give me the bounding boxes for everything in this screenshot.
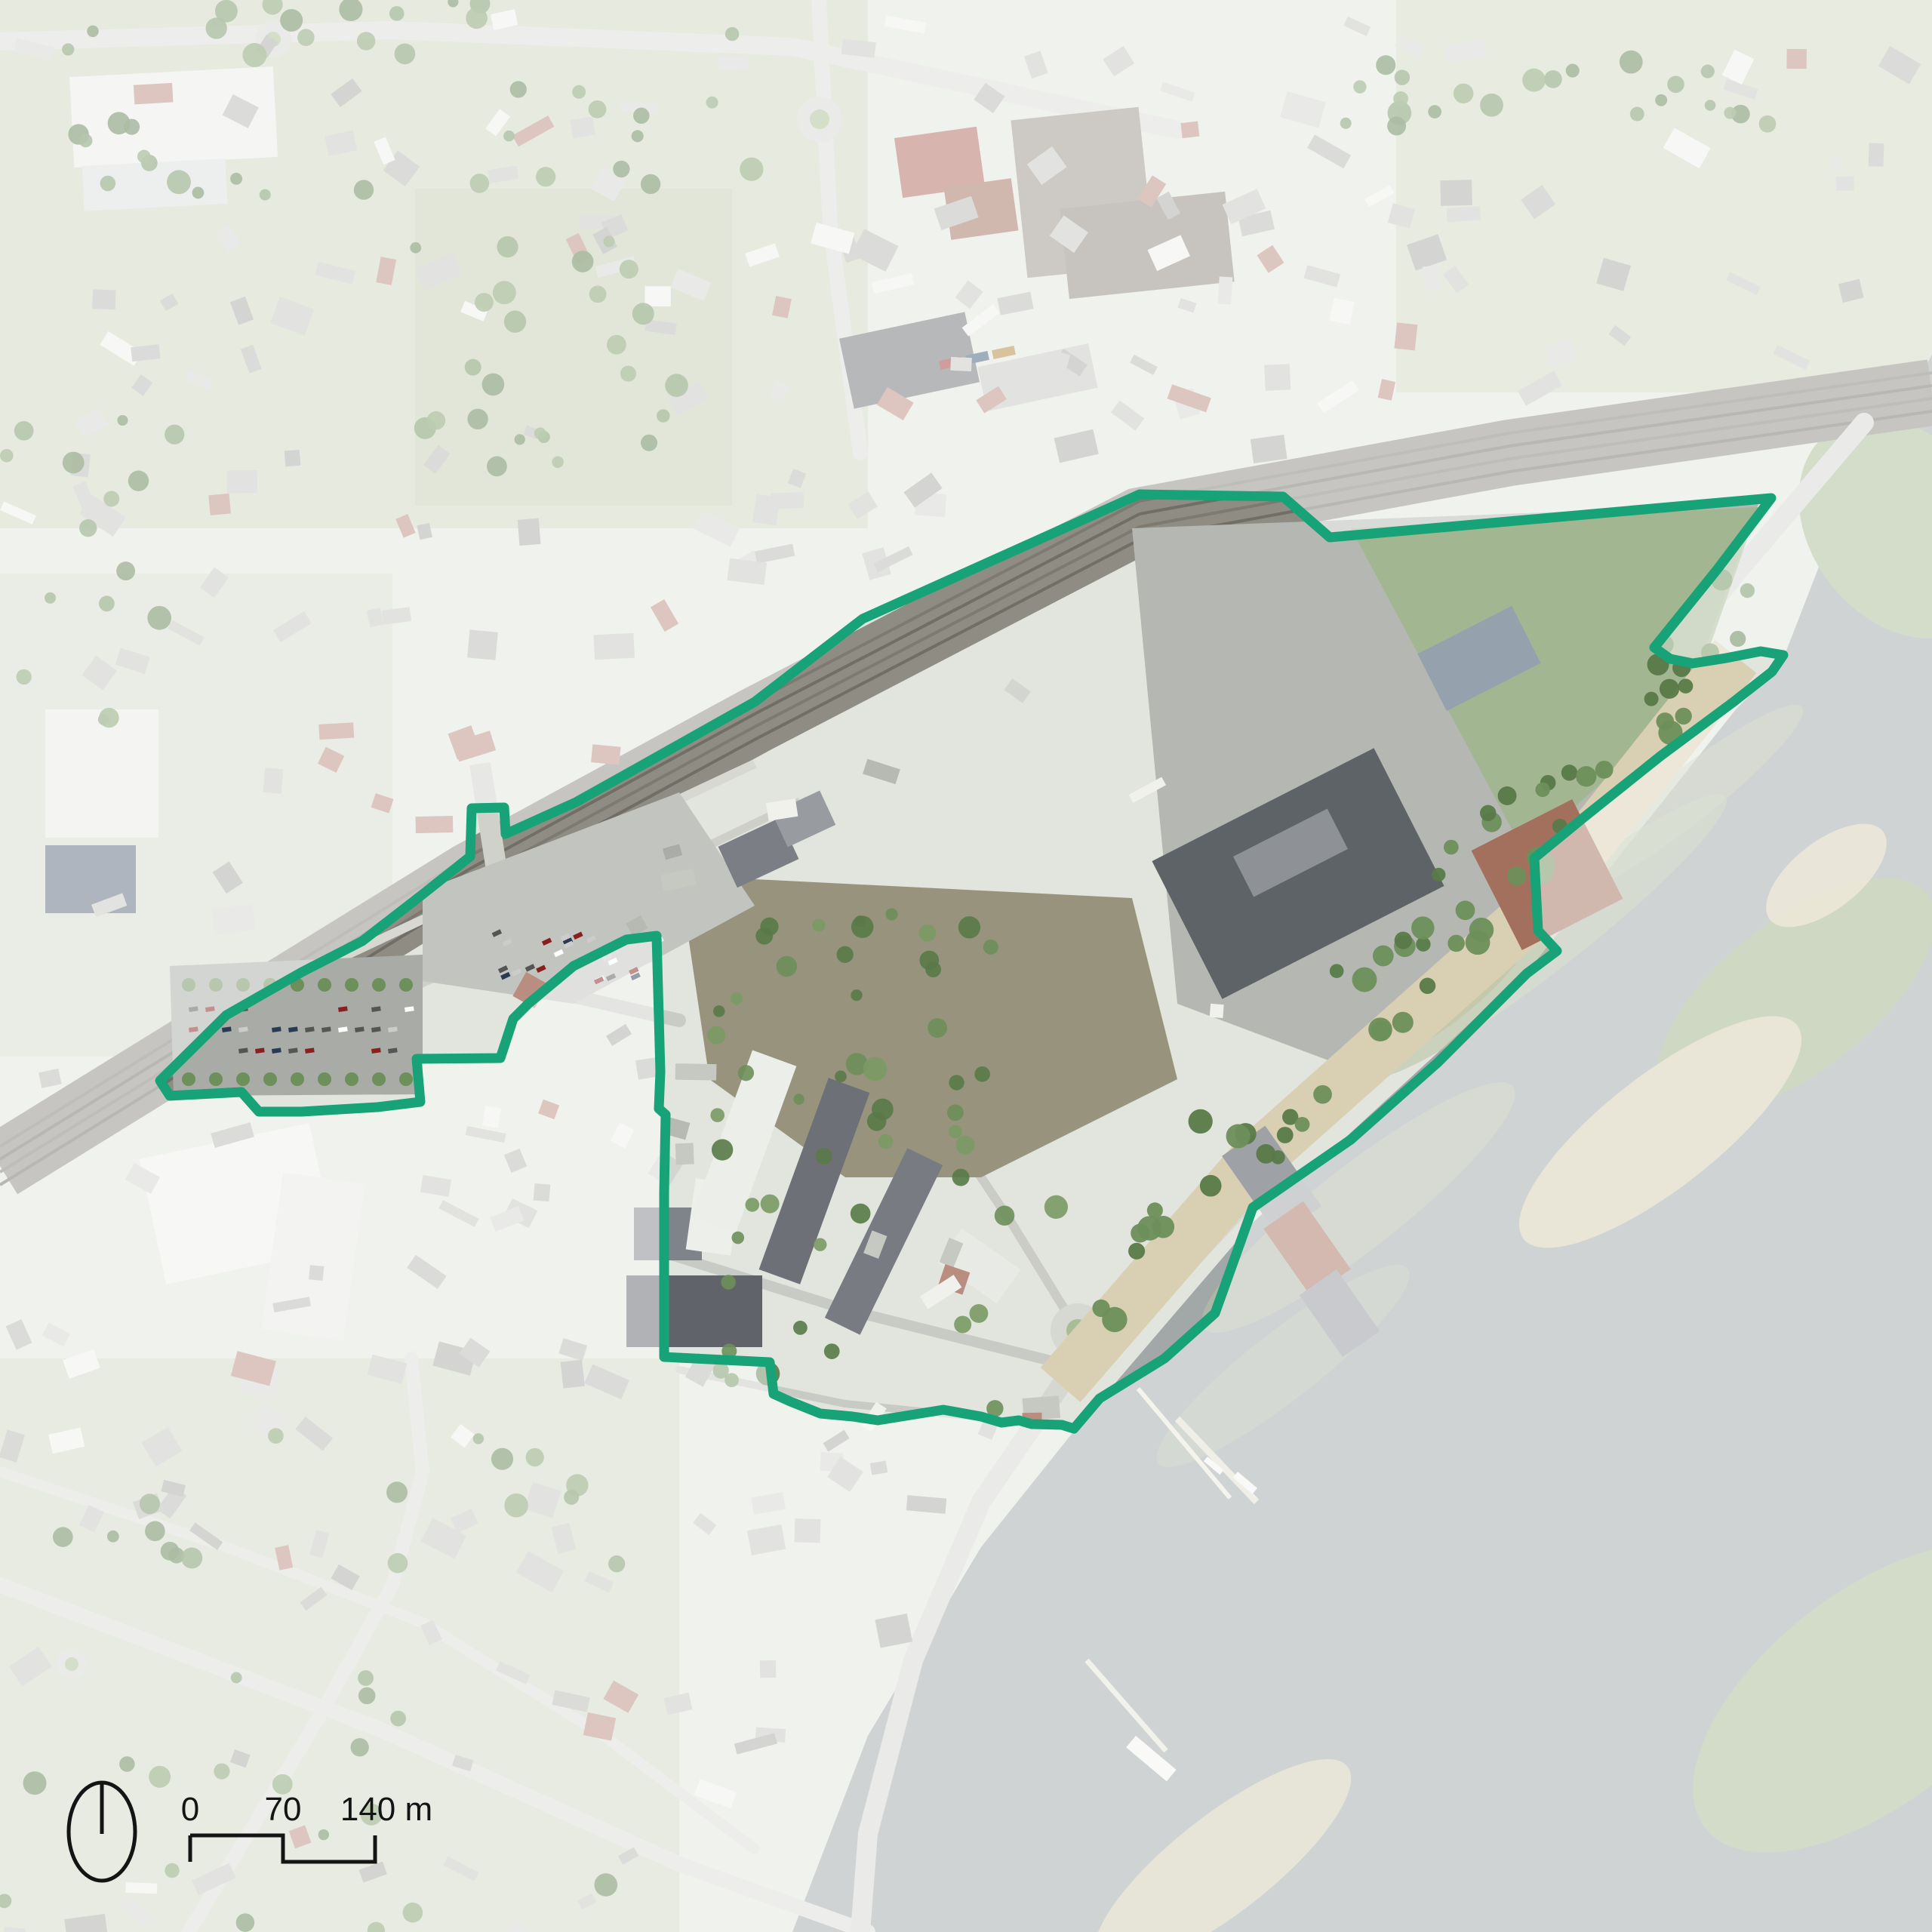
scale-label-140m: 140 m <box>340 1791 432 1828</box>
scale-label-0: 0 <box>181 1791 199 1828</box>
scale-label-70: 70 <box>265 1791 302 1828</box>
aerial-map-stage: 0 70 140 m <box>0 0 1932 1932</box>
aerial-map: 0 70 140 m <box>0 0 1932 1932</box>
fade-overlay <box>0 0 1932 1932</box>
